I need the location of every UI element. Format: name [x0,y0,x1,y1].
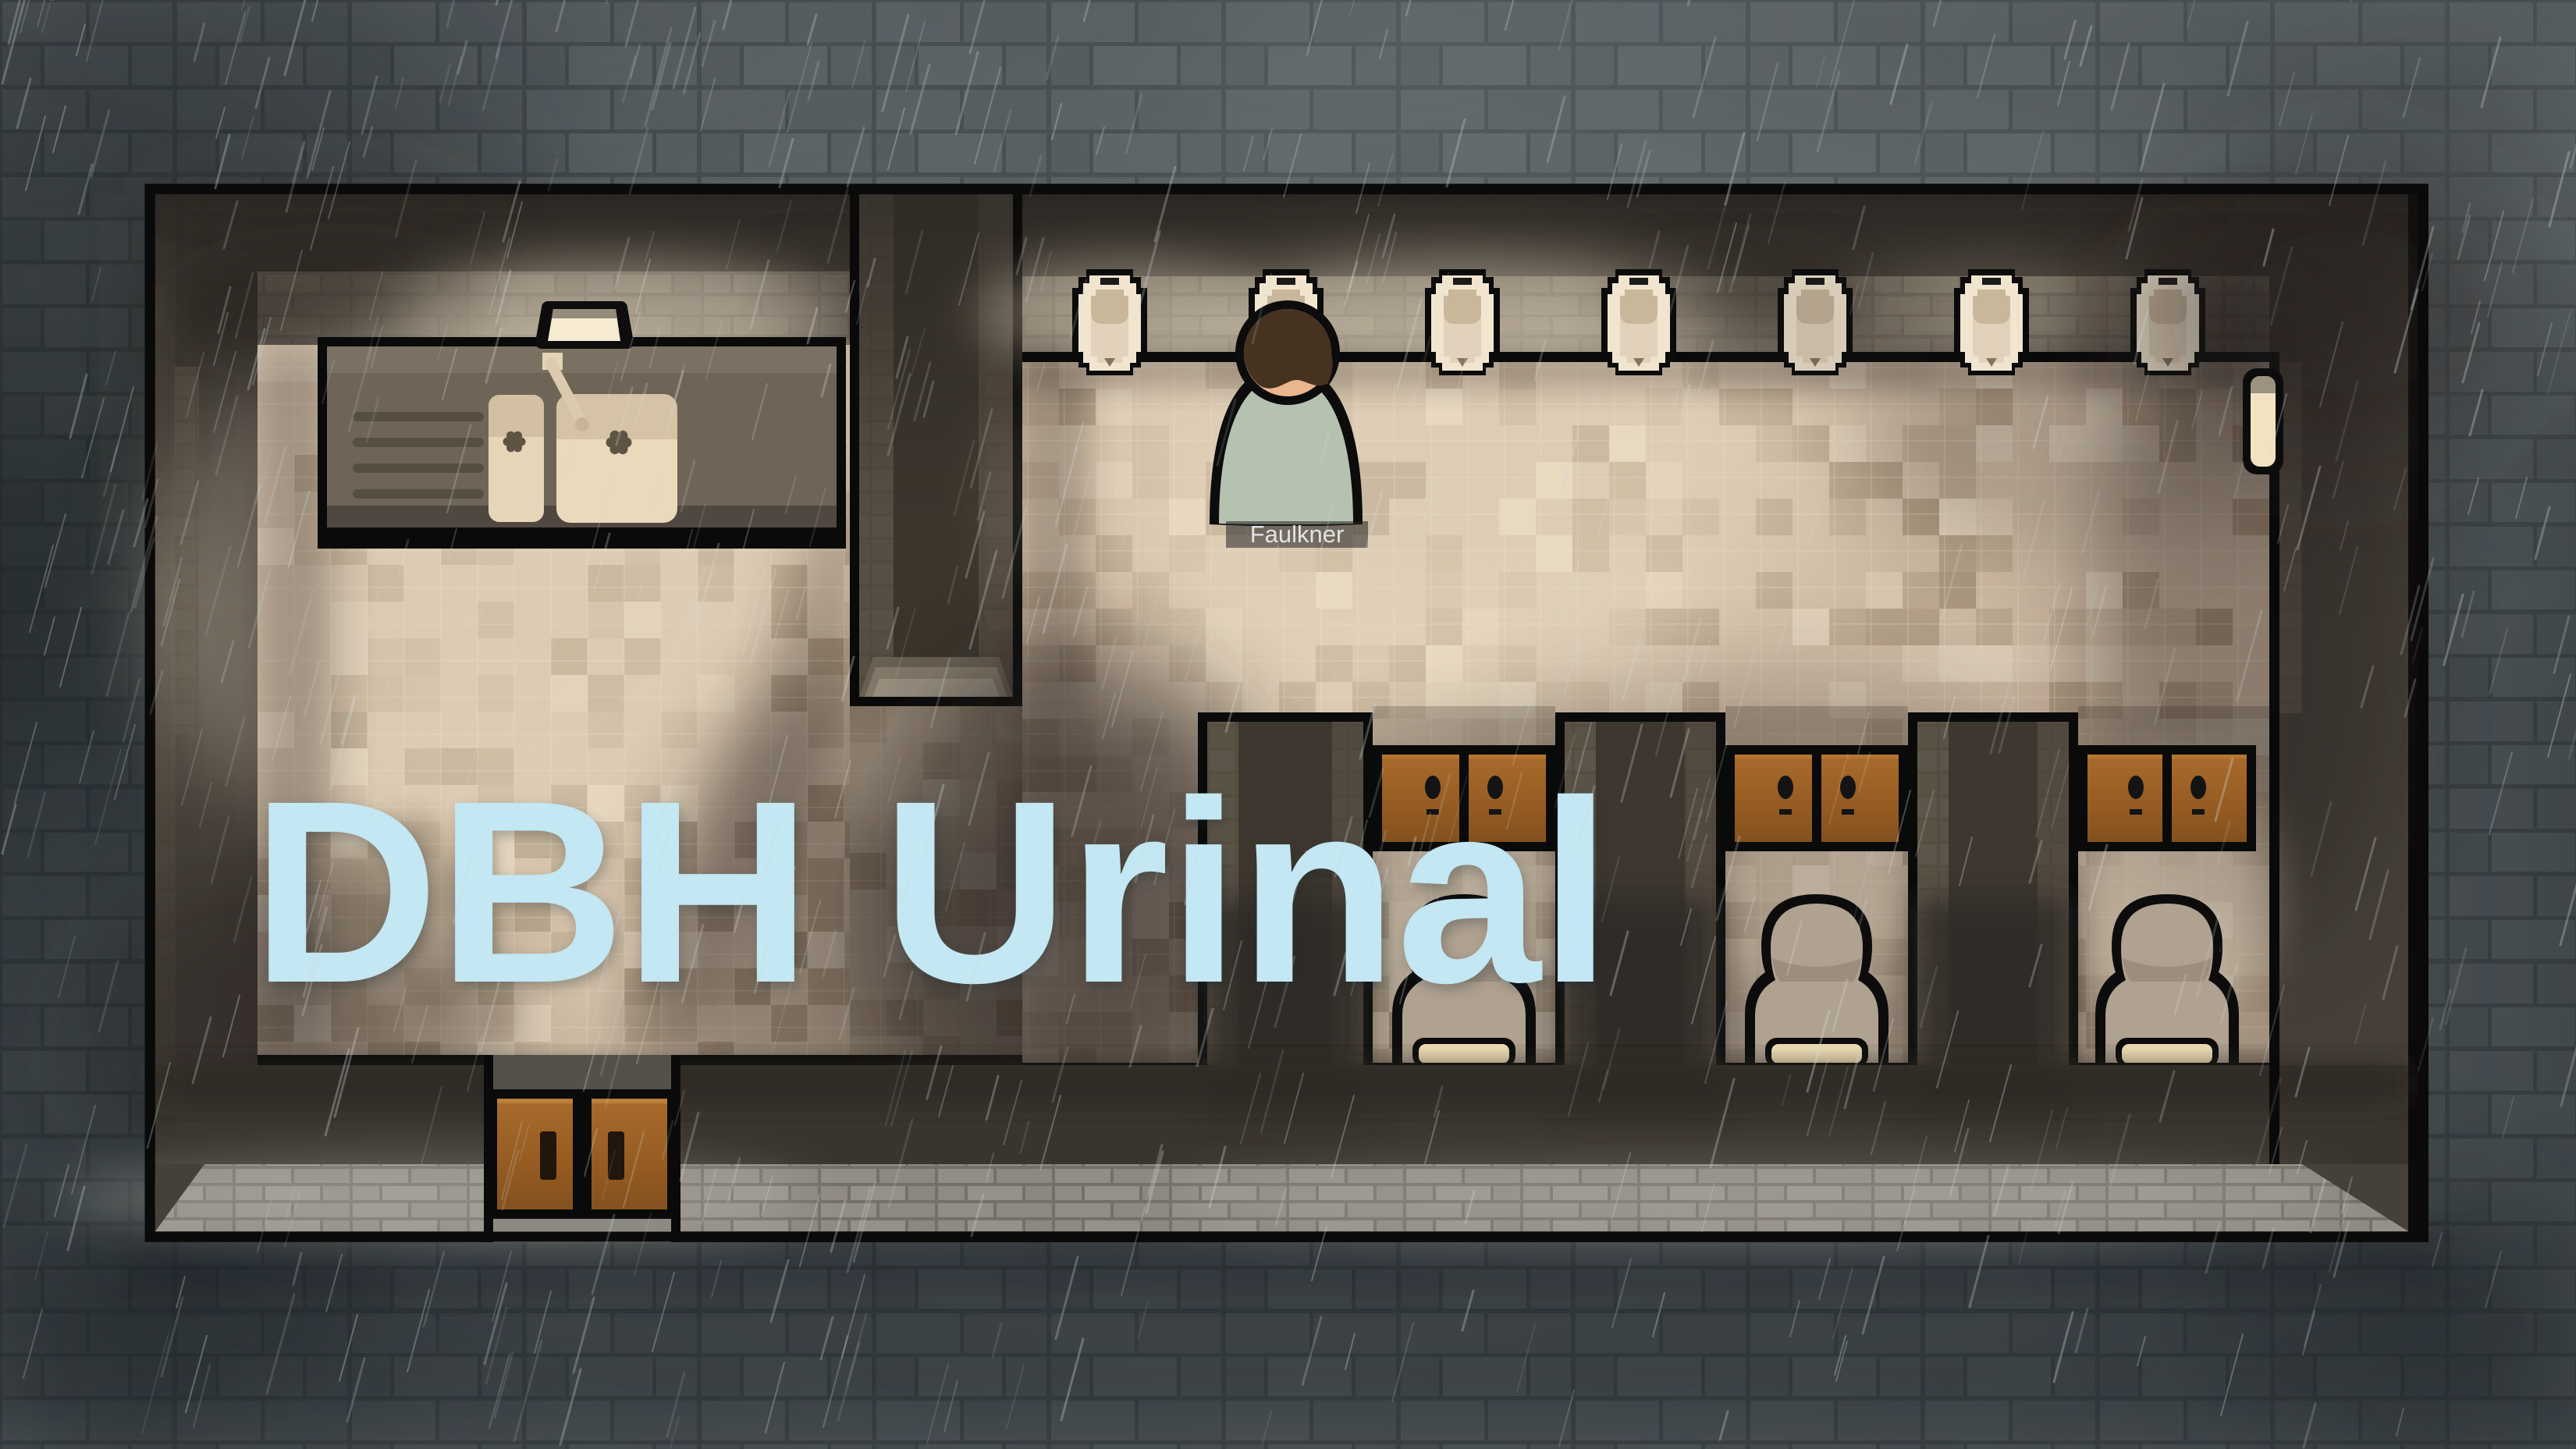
svg-text:Faulkner: Faulkner [1250,520,1345,548]
svg-text:DBH Urinal: DBH Urinal [251,747,1611,1037]
